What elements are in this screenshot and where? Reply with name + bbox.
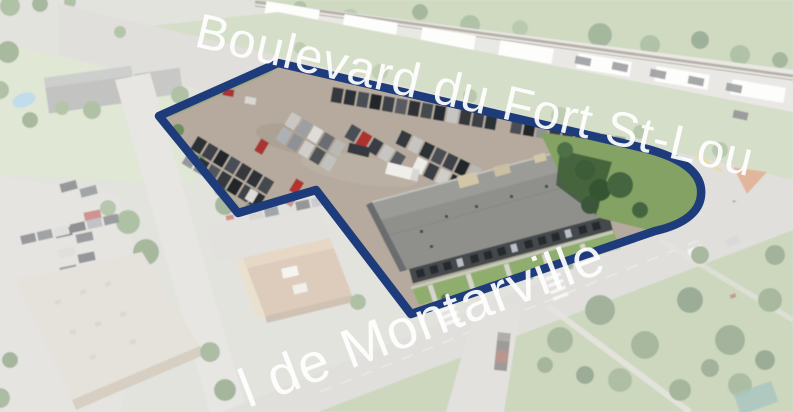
aerial-photo: Boulevard du Fort St-Lou l de Montarvill…	[0, 0, 793, 412]
aerial-map: Boulevard du Fort St-Lou l de Montarvill…	[0, 0, 793, 412]
